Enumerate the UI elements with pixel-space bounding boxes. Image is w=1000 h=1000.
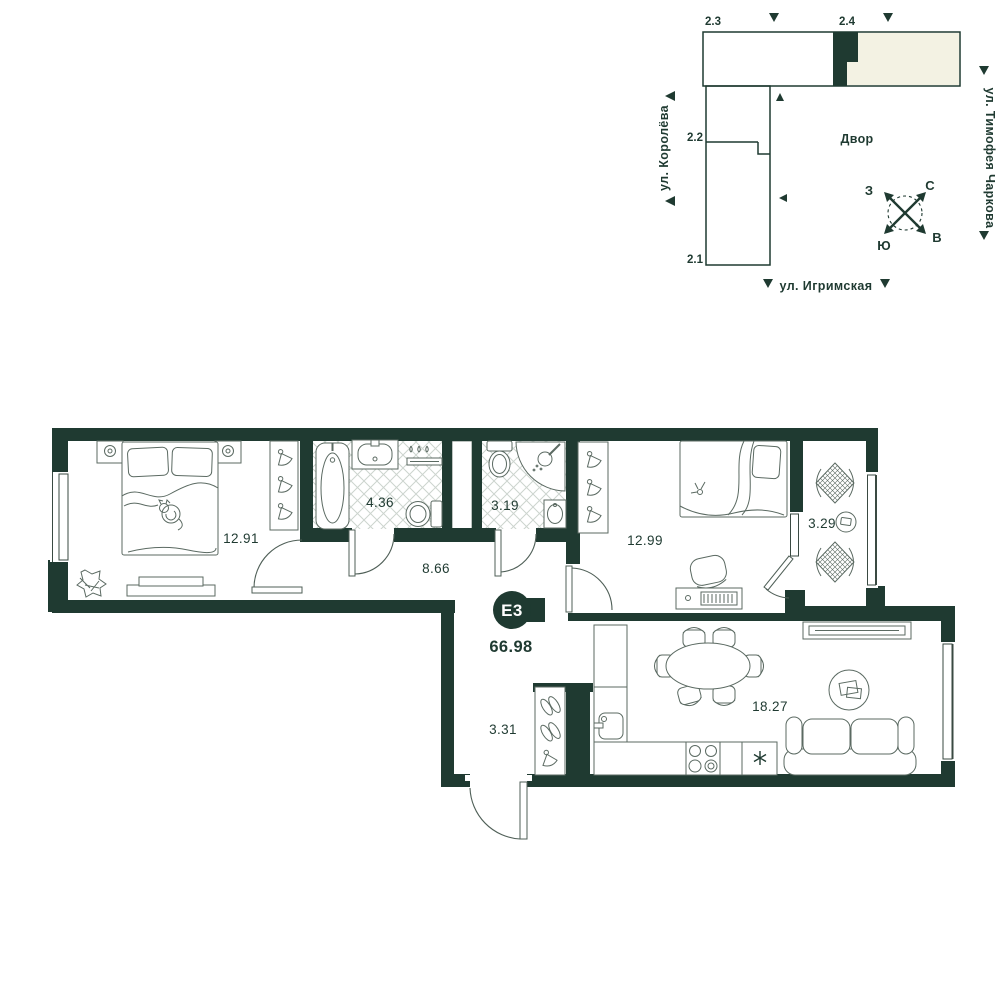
courtyard-label: Двор [841,132,874,146]
door-bathroom-icon [349,530,394,576]
side-table-icon [836,512,856,532]
block-label-2-4: 2.4 [839,16,856,28]
small-sink-icon [544,500,566,528]
street-arrow-icon [665,91,675,101]
street-right-label: ул. Тимофея Чаркова [983,88,997,230]
dining-table-icon [655,628,764,709]
entry-furniture [535,687,565,775]
sofa-icon [784,717,916,775]
street-arrow-icon [979,66,989,75]
street-arrow-icon [665,196,675,206]
site-building-b-divider [706,142,770,154]
street-arrow-icon [880,279,890,288]
compass-icon: С З Ю В [865,178,942,253]
double-bed-icon [122,442,218,555]
console-table-icon [803,622,911,639]
nightstand-icon [215,441,241,463]
wardrobe-icon [270,441,298,530]
shoe-cabinet-icon [535,687,565,775]
door-bedroom1-icon [252,540,302,593]
duct-shaft [452,441,472,529]
door-jamb [527,775,532,781]
room-area-hallway: 8.66 [422,561,450,576]
arrow-left-icon [779,194,787,202]
street-bottom-label: ул. Игримская [780,279,873,293]
rug-icon [829,670,869,710]
street-arrow-icon [979,231,989,240]
room-area-loggia: 3.29 [808,516,836,531]
floor-plan-svg: 2.3 2.4 2.2 2.1 Двор ул. Королёва ул. Ти… [0,0,1000,1000]
toilet-icon [406,501,442,527]
arrow-down-icon [769,13,779,22]
site-building-b [706,86,770,265]
plant-icon [77,570,106,597]
arrow-up-icon [776,93,784,101]
room-area-bathroom: 4.36 [366,495,394,510]
fridge-icon [742,742,777,775]
block-label-2-3: 2.3 [705,16,721,28]
bedroom2-furniture [578,441,787,609]
room-area-bedroom-2: 12.99 [627,533,663,548]
floor-plan-page: 2.3 2.4 2.2 2.1 Двор ул. Королёва ул. Ти… [0,0,1000,1000]
block-label-2-1: 2.1 [687,254,704,266]
site-highlighted-block-fill [847,33,959,85]
street-left-label: ул. Королёва [657,104,671,191]
window-loggia-icon [866,472,878,588]
unit-badge-label: E3 [501,601,523,620]
bathtub-icon [316,443,349,529]
apartment-plan: 12.91 4.36 3.19 8.66 12.99 3.29 3.31 18.… [48,428,955,839]
dresser-icon [127,577,215,596]
room-area-bedroom-1: 12.91 [223,531,259,546]
window-living-icon [941,642,955,761]
door-jamb [465,775,470,781]
street-arrow-icon [763,279,773,288]
room-area-entry: 3.31 [489,722,517,737]
door-bedroom2-icon [566,566,612,612]
compass-east: В [932,230,941,245]
room-area-kitchen-living: 18.27 [752,699,788,714]
site-plan: 2.3 2.4 2.2 2.1 Двор ул. Королёва ул. Ти… [657,13,997,293]
compass-south: Ю [877,238,890,253]
arrow-down-icon [883,13,893,22]
lounge-chair-icon [816,542,854,582]
desk-icon [676,588,742,609]
door-wc-icon [495,530,536,576]
window-balcony-block-icon [789,512,803,558]
lounge-chair-icon [816,463,854,503]
toilet-icon [487,441,512,477]
bedroom1-furniture [77,441,298,597]
room-area-wc: 3.19 [491,498,519,513]
compass-north: С [925,178,935,193]
desk-chair-icon [688,554,729,591]
nightstand-icon [97,441,123,463]
single-bed-icon [680,441,787,517]
window-bedroom1-icon [50,472,68,562]
sink-icon [352,440,398,469]
unit-badge: E3 [493,591,531,629]
block-label-2-2: 2.2 [687,132,703,144]
total-area-label: 66.98 [489,638,532,656]
wardrobe-icon [578,442,608,533]
compass-west: З [865,183,873,198]
door-entrance-icon [470,782,527,839]
